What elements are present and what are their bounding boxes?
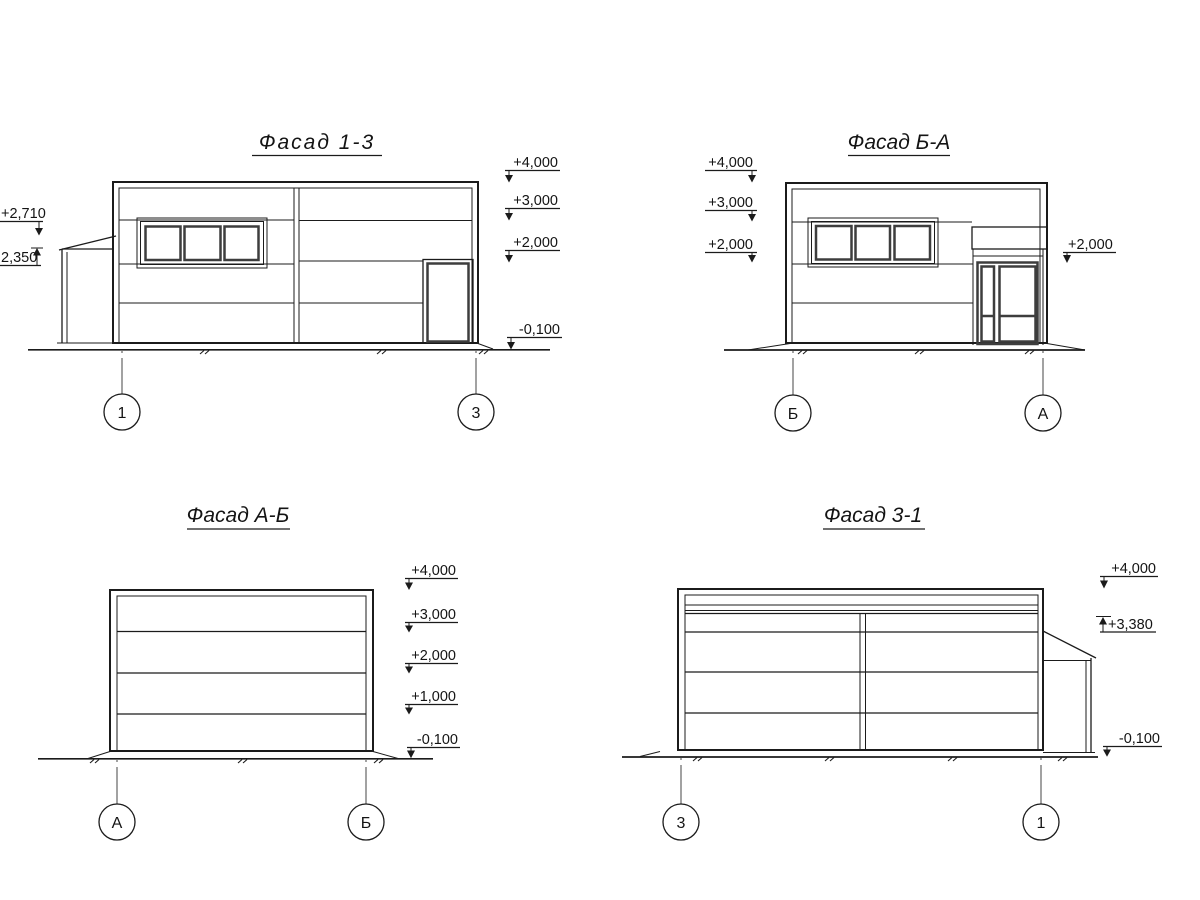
line-segment bbox=[1030, 351, 1034, 355]
drawing-sheet: Фасад 1-3 bbox=[0, 0, 1200, 900]
line-segment bbox=[748, 344, 790, 351]
line-segment bbox=[484, 351, 488, 355]
elevation-mark-1000: +1,000 bbox=[405, 689, 458, 715]
ground-hatch bbox=[200, 351, 488, 355]
rect-segment bbox=[119, 188, 472, 343]
axis-bubble-3: 3 bbox=[663, 758, 699, 840]
elevation-mark-0100: -0,100 bbox=[407, 732, 460, 758]
path-segment bbox=[407, 751, 415, 759]
line-segment bbox=[1047, 344, 1085, 351]
line-segment bbox=[374, 760, 378, 764]
rect-segment bbox=[428, 264, 469, 342]
elevation-label: +4,000 bbox=[708, 155, 753, 171]
elevation-mark-2350: 2,350 bbox=[0, 248, 43, 266]
path-segment bbox=[507, 342, 515, 350]
annex bbox=[1043, 631, 1096, 753]
rect-segment bbox=[185, 227, 221, 261]
axis-bubble-a: А bbox=[99, 760, 135, 840]
elevation-mark-0100: -0,100 bbox=[507, 322, 562, 350]
rect-segment bbox=[895, 226, 931, 260]
elevation-label: +3,000 bbox=[708, 195, 753, 211]
axis-label: 3 bbox=[677, 815, 686, 832]
axis-label: 3 bbox=[472, 405, 481, 422]
path-segment bbox=[405, 667, 413, 674]
rect-segment bbox=[812, 222, 935, 264]
elevation-label: +4,000 bbox=[1111, 561, 1156, 577]
axis-bubble-1: 1 bbox=[1023, 758, 1059, 840]
rect-segment bbox=[816, 226, 852, 260]
facade-b-a: Фасад Б-А bbox=[705, 131, 1116, 431]
line-segment bbox=[1025, 351, 1029, 355]
axis-label: Б bbox=[788, 406, 799, 423]
line-segment bbox=[205, 351, 209, 355]
line-segment bbox=[59, 236, 116, 250]
elevation-label: -0,100 bbox=[417, 732, 458, 748]
elevation-label: +3,000 bbox=[411, 607, 456, 623]
path-segment bbox=[505, 255, 513, 263]
ribbon-window bbox=[137, 218, 267, 268]
line-segment bbox=[379, 760, 383, 764]
path-segment bbox=[35, 228, 43, 236]
elevation-label: +4,000 bbox=[513, 155, 558, 171]
rect-segment bbox=[141, 222, 264, 265]
path-segment bbox=[1103, 750, 1111, 757]
path-segment bbox=[1063, 255, 1071, 263]
elevation-label: +2,000 bbox=[411, 648, 456, 664]
rect-segment bbox=[856, 226, 891, 260]
line-segment bbox=[1058, 758, 1062, 762]
path-segment bbox=[1099, 617, 1107, 625]
rect-segment bbox=[146, 227, 181, 261]
axis-label: 1 bbox=[118, 405, 127, 422]
ground-hatch bbox=[798, 351, 1034, 355]
path-segment bbox=[405, 626, 413, 633]
elevation-mark-3000: +3,000 bbox=[505, 193, 560, 221]
elevation-mark-3380: +3,380 bbox=[1096, 617, 1156, 634]
rect-segment bbox=[978, 263, 1038, 345]
line-segment bbox=[478, 344, 493, 350]
line-segment bbox=[948, 758, 952, 762]
rect-segment bbox=[423, 260, 473, 344]
door bbox=[423, 260, 473, 344]
ribbon-window bbox=[808, 218, 938, 267]
ground-hatch bbox=[90, 760, 383, 764]
elevation-mark-0100: -0,100 bbox=[1103, 731, 1162, 757]
elevation-mark-3000: +3,000 bbox=[705, 195, 757, 222]
line-segment bbox=[382, 351, 386, 355]
elevation-mark-2000-right: +2,000 bbox=[1063, 237, 1116, 263]
entrance-door bbox=[978, 263, 1038, 345]
line-segment bbox=[1043, 631, 1096, 658]
building-outline bbox=[110, 590, 373, 751]
path-segment bbox=[405, 583, 413, 591]
elevation-label: +3,000 bbox=[513, 193, 558, 209]
elevation-mark-2000: +2,000 bbox=[505, 235, 560, 263]
elevation-mark-4000: +4,000 bbox=[405, 563, 458, 590]
elevation-mark-2000: +2,000 bbox=[705, 237, 757, 263]
ground-line bbox=[28, 344, 550, 355]
path-segment bbox=[748, 214, 756, 222]
elevation-label: +2,000 bbox=[513, 235, 558, 251]
facade-a-b: Фасад А-Б +4,000 +3,000 bbox=[38, 504, 460, 840]
elevation-label: +2,710 bbox=[1, 206, 46, 222]
axis-label: 1 bbox=[1037, 815, 1046, 832]
facade-1-3: Фасад 1-3 bbox=[0, 131, 562, 430]
line-segment bbox=[830, 758, 834, 762]
elevation-label: +3,380 bbox=[1108, 617, 1153, 633]
elevation-mark-4000: +4,000 bbox=[505, 155, 560, 183]
ground-line bbox=[622, 752, 1098, 762]
elevation-label: +4,000 bbox=[411, 563, 456, 579]
facade-a-b-title: Фасад А-Б bbox=[187, 504, 290, 527]
path-segment bbox=[505, 175, 513, 183]
facade-3-1-title: Фасад 3-1 bbox=[824, 504, 922, 527]
line-segment bbox=[95, 760, 99, 764]
facade-1-3-title: Фасад 1-3 bbox=[259, 131, 375, 154]
axis-bubble-b: Б bbox=[348, 760, 384, 840]
axis-bubble-1: 1 bbox=[104, 351, 140, 430]
line-segment bbox=[200, 351, 204, 355]
line-segment bbox=[798, 351, 802, 355]
annex bbox=[57, 236, 116, 343]
line-segment bbox=[825, 758, 829, 762]
ground-line bbox=[38, 752, 433, 764]
elevation-label: +2,000 bbox=[1068, 237, 1113, 253]
line-segment bbox=[238, 760, 242, 764]
path-segment bbox=[1100, 581, 1108, 589]
path-segment bbox=[748, 175, 756, 183]
elevation-label: -0,100 bbox=[1119, 731, 1160, 747]
axis-label: А bbox=[1038, 406, 1049, 423]
elevation-mark-4000: +4,000 bbox=[1100, 561, 1158, 589]
elevation-mark-2000: +2,000 bbox=[405, 648, 458, 674]
axis-label: А bbox=[112, 815, 123, 832]
line-segment bbox=[640, 752, 660, 757]
rect-segment bbox=[1000, 267, 1036, 342]
elevation-label: +2,000 bbox=[708, 237, 753, 253]
rect-segment bbox=[110, 590, 373, 751]
line-segment bbox=[1063, 758, 1067, 762]
line-segment bbox=[953, 758, 957, 762]
path-segment bbox=[748, 255, 756, 263]
line-segment bbox=[243, 760, 247, 764]
elevation-label: +1,000 bbox=[411, 689, 456, 705]
rect-segment bbox=[982, 267, 995, 342]
line-segment bbox=[373, 752, 398, 759]
elevation-label: -0,100 bbox=[519, 322, 560, 338]
line-segment bbox=[693, 758, 697, 762]
line-segment bbox=[377, 351, 381, 355]
line-segment bbox=[920, 351, 924, 355]
path-segment bbox=[505, 213, 513, 221]
path-segment bbox=[405, 708, 413, 715]
facade-b-a-title: Фасад Б-А bbox=[848, 131, 951, 154]
line-segment bbox=[698, 758, 702, 762]
axis-bubble-3: 3 bbox=[458, 351, 494, 430]
facades-drawing: Фасад 1-3 bbox=[0, 0, 1200, 900]
rect-segment bbox=[972, 227, 1047, 249]
elevation-mark-4000: +4,000 bbox=[705, 155, 757, 183]
line-segment bbox=[90, 760, 94, 764]
ground-hatch bbox=[693, 758, 1067, 762]
line-segment bbox=[88, 752, 110, 759]
line-segment bbox=[803, 351, 807, 355]
rect-segment bbox=[225, 227, 259, 261]
axis-label: Б bbox=[361, 815, 372, 832]
axis-bubble-b: Б bbox=[775, 351, 811, 431]
building-outline bbox=[678, 589, 1043, 750]
elevation-mark-3000: +3,000 bbox=[405, 607, 458, 633]
axis-bubble-a: А bbox=[1025, 351, 1061, 431]
elevation-mark-2710: +2,710 bbox=[0, 206, 46, 236]
line-segment bbox=[479, 351, 483, 355]
elevation-label: 2,350 bbox=[1, 250, 37, 266]
line-segment bbox=[915, 351, 919, 355]
facade-3-1: Фасад 3-1 bbox=[622, 504, 1162, 840]
